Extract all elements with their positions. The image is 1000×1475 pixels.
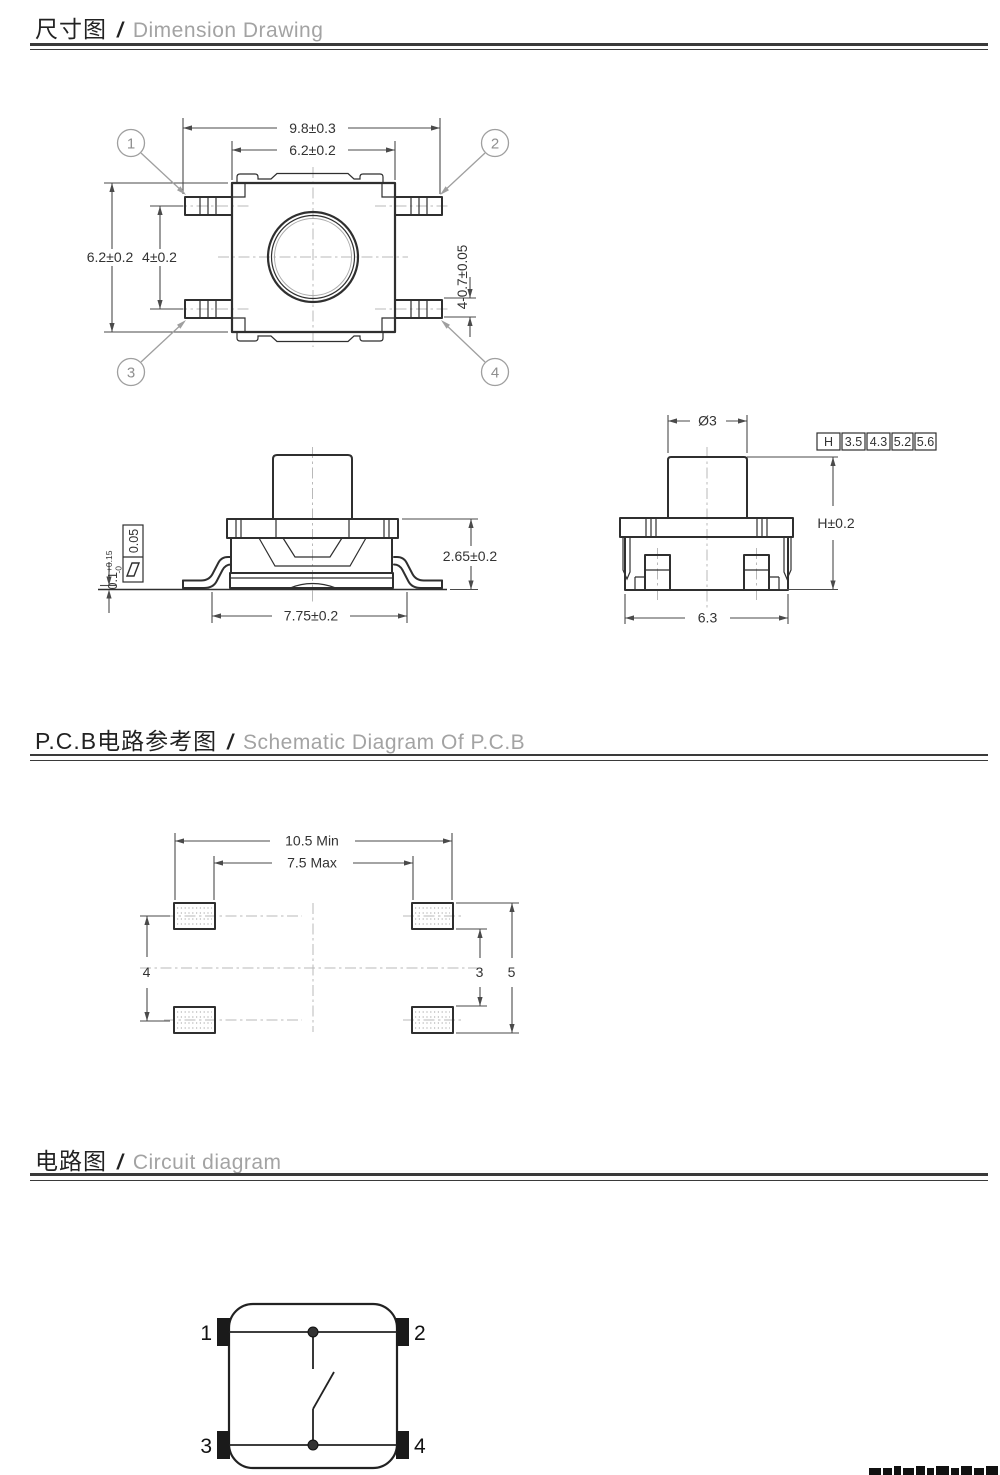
top-view: 9.8±0.3 6.2±0.2 6.2±0.2 (87, 118, 509, 386)
dimension-section-header: 尺寸图 / Dimension Drawing (35, 10, 323, 44)
circuit-diagram: 1 2 3 4 (0, 1285, 1000, 1475)
contact-node-top (308, 1327, 318, 1337)
body-sides (231, 538, 392, 573)
circuit-title-en: Circuit diagram (133, 1151, 282, 1175)
pcb-layout: 10.5 Min 7.5 Max 4 3 5 (0, 800, 1000, 1080)
rule-thin (30, 760, 988, 761)
circuit-wiring (229, 1332, 397, 1445)
pad-4 (396, 1431, 409, 1459)
svg-text:6.3: 6.3 (698, 610, 718, 626)
dim-pad-span-vertical: 5 (456, 903, 519, 1033)
dim-terminal-pitch: 4±0.2 (142, 206, 183, 309)
flatness-symbol (127, 563, 139, 576)
svg-text:0.05: 0.05 (127, 529, 141, 553)
svg-text:0.1+0.15-0: 0.1+0.15-0 (104, 550, 124, 589)
centerlines (140, 903, 478, 1032)
svg-text:9.8±0.3: 9.8±0.3 (289, 120, 336, 136)
svg-text:6.2±0.2: 6.2±0.2 (289, 142, 336, 158)
svg-text:7.5 Max: 7.5 Max (287, 855, 337, 871)
svg-text:5.6: 5.6 (917, 435, 934, 449)
circuit-pin1-label: 1 (200, 1322, 212, 1345)
svg-text:2: 2 (491, 136, 499, 153)
svg-text:5.2: 5.2 (894, 435, 911, 449)
switch-blade (313, 1372, 334, 1409)
title-slash: / (117, 19, 123, 43)
svg-text:6.2±0.2: 6.2±0.2 (87, 249, 134, 265)
svg-text:4: 4 (491, 365, 499, 382)
svg-text:4: 4 (143, 964, 151, 980)
svg-text:4.3: 4.3 (870, 435, 887, 449)
svg-text:3: 3 (127, 365, 135, 382)
cover-flange-bottom (237, 332, 383, 342)
svg-text:1: 1 (127, 136, 135, 153)
pcb-section-header: P.C.B电路参考图 / Schematic Diagram Of P.C.B (35, 722, 525, 756)
svg-text:4±0.2: 4±0.2 (142, 249, 177, 265)
dimension-title-zh: 尺寸图 (35, 10, 107, 44)
svg-text:10.5 Min: 10.5 Min (285, 833, 339, 849)
circuit-pin4-label: 4 (414, 1435, 426, 1458)
svg-text:7.75±0.2: 7.75±0.2 (284, 608, 339, 624)
dim-stem-diameter: Ø3 (668, 413, 747, 454)
svg-text:2.65±0.2: 2.65±0.2 (443, 548, 498, 564)
centerlines (176, 167, 451, 347)
svg-text:3: 3 (476, 964, 484, 980)
title-slash: / (117, 1151, 123, 1175)
rule-thick (30, 43, 988, 46)
dim-lead-span: 7.75±0.2 (212, 592, 407, 624)
dim-terminal-thickness: 4-0.7±0.05 (444, 245, 476, 337)
pad-2 (396, 1318, 409, 1346)
rule-thin (30, 1180, 988, 1181)
circuit-pin3-label: 3 (200, 1435, 212, 1458)
rule-thin (30, 49, 988, 50)
circuit-section-header: 电路图 / Circuit diagram (35, 1142, 282, 1176)
rule-thick (30, 754, 988, 757)
rule-thick (30, 1173, 988, 1176)
cover-flange-top (237, 174, 383, 184)
svg-text:3.5: 3.5 (845, 435, 862, 449)
dim-standoff: 0.1+0.15-0 (104, 550, 124, 613)
contact-node-bottom (308, 1440, 318, 1450)
flatness-frame: 0.05 (123, 525, 143, 582)
pad-3 (217, 1431, 230, 1459)
height-table: H 3.5 4.3 5.2 5.6 (817, 433, 936, 450)
front-view: 0.1+0.15-0 0.05 2.65±0.2 (98, 447, 497, 624)
side-view: Ø3 H 3.5 4.3 5.2 5.6 (620, 413, 936, 626)
dim-pad-span-inner: 7.5 Max (214, 855, 413, 901)
title-slash: / (227, 731, 233, 755)
pad-1 (217, 1318, 230, 1346)
svg-text:H±0.2: H±0.2 (817, 515, 854, 531)
pcb-title-zh: P.C.B电路参考图 (35, 722, 217, 756)
svg-text:Ø3: Ø3 (698, 413, 717, 429)
svg-text:5: 5 (508, 964, 516, 980)
dimension-title-en: Dimension Drawing (133, 19, 324, 43)
dimension-drawing: 9.8±0.3 6.2±0.2 6.2±0.2 (0, 90, 1000, 660)
circuit-title-zh: 电路图 (35, 1142, 107, 1176)
svg-text:4-0.7±0.05: 4-0.7±0.05 (455, 245, 470, 309)
svg-text:H: H (824, 435, 833, 449)
logo-fragment (869, 1466, 998, 1475)
pcb-title-en: Schematic Diagram Of P.C.B (243, 731, 525, 755)
base (230, 573, 393, 588)
circuit-pin2-label: 2 (414, 1322, 426, 1345)
